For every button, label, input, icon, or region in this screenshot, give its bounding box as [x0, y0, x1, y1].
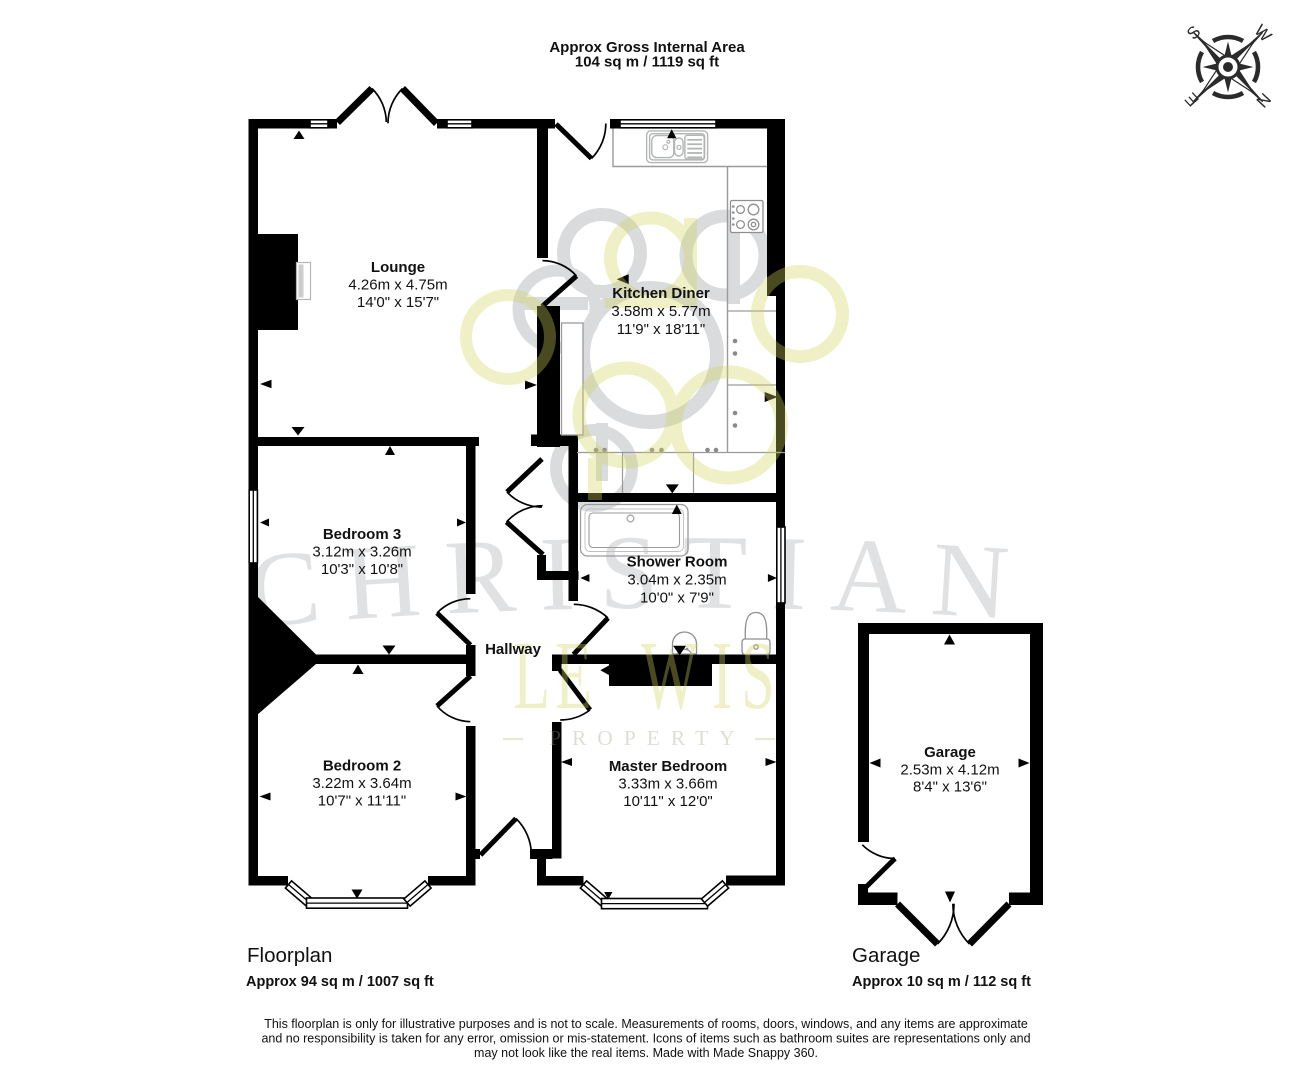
svg-text:10'0" x 7'9": 10'0" x 7'9" — [640, 590, 714, 607]
svg-text:3.58m x 5.77m: 3.58m x 5.77m — [611, 303, 710, 320]
svg-text:3.22m x 3.64m: 3.22m x 3.64m — [312, 775, 411, 792]
svg-text:14'0" x 15'7": 14'0" x 15'7" — [357, 294, 439, 311]
svg-text:3.04m x 2.35m: 3.04m x 2.35m — [627, 572, 726, 589]
svg-text:Master Bedroom: Master Bedroom — [609, 758, 727, 775]
svg-text:Floorplan: Floorplan — [247, 944, 332, 967]
svg-text:may not look like the real ite: may not look like the real items. Made w… — [474, 1046, 818, 1060]
svg-text:11'9" x 18'11": 11'9" x 18'11" — [617, 321, 705, 338]
svg-text:E: E — [555, 620, 592, 729]
svg-text:PROPERTY: PROPERTY — [549, 726, 746, 750]
svg-text:W: W — [641, 620, 698, 729]
svg-text:3.33m x 3.66m: 3.33m x 3.66m — [618, 776, 717, 793]
svg-text:4.26m x 4.75m: 4.26m x 4.75m — [348, 277, 447, 294]
svg-text:10'11" x 12'0": 10'11" x 12'0" — [623, 793, 713, 810]
svg-text:3.12m x 3.26m: 3.12m x 3.26m — [312, 544, 411, 561]
svg-text:Kitchen Diner: Kitchen Diner — [612, 285, 710, 302]
svg-text:Bedroom 3: Bedroom 3 — [323, 526, 401, 543]
svg-text:I: I — [712, 620, 732, 729]
svg-text:Garage: Garage — [852, 944, 920, 967]
svg-text:8'4" x 13'6": 8'4" x 13'6" — [913, 779, 987, 796]
svg-text:10'7" x 11'11": 10'7" x 11'11" — [318, 793, 406, 810]
svg-text:This floorplan is only for ill: This floorplan is only for illustrative … — [264, 1017, 1028, 1031]
svg-text:2.53m x 4.12m: 2.53m x 4.12m — [900, 762, 999, 779]
svg-text:Hallway: Hallway — [485, 641, 542, 658]
svg-text:104 sq m / 1119 sq ft: 104 sq m / 1119 sq ft — [575, 54, 719, 71]
svg-text:Approx 94 sq m / 1007 sq ft: Approx 94 sq m / 1007 sq ft — [246, 974, 434, 990]
svg-text:Shower Room: Shower Room — [627, 554, 728, 571]
svg-text:Garage: Garage — [924, 744, 976, 761]
svg-text:Lounge: Lounge — [371, 259, 425, 276]
svg-text:10'3" x 10'8": 10'3" x 10'8" — [321, 561, 403, 578]
svg-text:Approx 10 sq m / 112 sq ft: Approx 10 sq m / 112 sq ft — [852, 974, 1031, 990]
svg-text:Bedroom 2: Bedroom 2 — [323, 758, 401, 775]
svg-text:L: L — [513, 620, 550, 729]
svg-text:S: S — [741, 620, 775, 729]
svg-text:and no responsibility is taken: and no responsibility is taken for any e… — [261, 1032, 1030, 1046]
